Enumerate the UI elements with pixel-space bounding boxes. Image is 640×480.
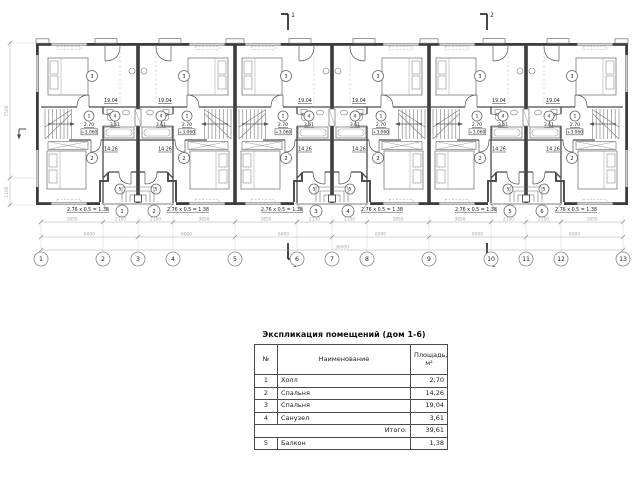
table-row: 2 Спальня 14,26 [255,387,448,400]
pillow [218,61,226,74]
dim-label: 6000 [472,231,483,237]
area-label-bedroom-large: 19.04 [546,98,560,104]
dim-label: 3850 [392,216,403,222]
dim-label: 3850 [586,216,597,222]
stair-start-dot [614,123,616,125]
pillow [438,76,446,89]
cell-num: 4 [255,412,278,425]
pillow [50,61,58,74]
entry-canopy [159,39,181,44]
area-label-bedroom-small: 14.26 [158,147,172,153]
axis-bubble-label: 3 [136,256,140,263]
door-swing [381,95,393,107]
stair-arrow [589,122,594,126]
entry-canopy [289,39,311,44]
door-swing [313,172,325,184]
door-swing [465,95,477,107]
axis-bubble-label: 4 [171,256,175,263]
room-badge-balcony-label: 5 [155,187,158,193]
pillow [413,154,421,167]
door-swing [91,140,101,152]
radiator [251,47,275,50]
dim-label: 3850 [66,216,77,222]
pillow [50,76,58,89]
bed [188,58,228,95]
room-badge-bedroom-small-label: 2 [284,156,287,162]
dim-label: 2150 [344,216,355,222]
sink [511,110,518,115]
cell-num: 2 [255,387,278,400]
cell-name: Санузел [278,412,411,425]
dim-label: 2150 [538,216,549,222]
level-mark-label: +3.060 [469,130,485,136]
balcony-area-calc: 2.76 x 0.5 = 1.38 [67,207,109,213]
pillow [49,154,57,167]
room-badge-balcony-label: 5 [349,187,352,193]
stair-arrow [458,122,463,126]
dim-label: 2150 [309,216,320,222]
stair-arrow [201,122,206,126]
pillow [244,61,252,74]
balcony-area-calc: 2.76 x 0.5 = 1.38 [167,207,209,213]
sink [535,110,542,115]
bed [382,58,422,95]
unit-number-badge-label: 2 [152,209,156,215]
level-mark-label: +3.060 [275,130,291,136]
axis-bubble-label: 10 [487,256,495,263]
stair-start-dot [242,123,244,125]
sink [317,110,324,115]
room-badge-balcony-label: 5 [507,187,510,193]
door-swing [533,172,545,184]
bathtub-inner [106,129,132,136]
room-badge-bedroom-large-label: 3 [478,74,481,80]
room-badge-hall-label: 1 [186,114,189,120]
header-num: № [255,345,278,375]
unit-number-badge-label: 1 [120,209,124,215]
dim-total-label: 36000 [335,244,349,250]
axis-bubble-label: 7 [330,256,334,263]
dim-label: 2150 [150,216,161,222]
dim-label: 6000 [569,231,580,237]
room-badge-balcony-label: 5 [119,187,122,193]
area-label-bedroom-small: 14.26 [298,147,312,153]
radiator [57,47,81,50]
pillow [218,76,226,89]
level-mark-label: +3.060 [373,130,389,136]
stair-arrow [70,122,75,126]
door-swing [493,46,508,61]
door-swing [479,140,489,152]
room-badge-hall-label: 1 [380,114,383,120]
pillow [243,170,251,183]
door-swing [145,172,157,184]
radiator [583,47,607,50]
door-swing [350,46,365,61]
cell-area: 3,61 [411,412,448,425]
axis-bubble-label: 12 [557,256,565,263]
top-ledge [615,39,628,43]
room-badge-hall-label: 1 [476,114,479,120]
room-badge-bathroom-label: 4 [114,114,117,120]
fixture [517,68,523,74]
fixture [335,68,341,74]
door-swing [187,95,199,107]
porch-post [523,195,530,202]
area-label-bedroom-large: 19.04 [492,98,506,104]
room-badge-bedroom-small-label: 2 [570,156,573,162]
table-row: 5 Балкон 1,38 [255,437,448,450]
dim-label: 6000 [84,231,95,237]
dim-label-vertical: 1100 [4,186,10,197]
room-badge-bedroom-large-label: 3 [90,74,93,80]
axis-bubble-label: 9 [427,256,431,263]
door-swing [77,95,89,107]
dim-label: 2150 [503,216,514,222]
level-mark-label: +3.060 [179,130,195,136]
door-swing [575,95,587,107]
entry-canopy [95,39,117,44]
door-swing [563,140,573,152]
bed [48,58,88,95]
bathtub-inner [338,129,364,136]
cell-num: 3 [255,400,278,413]
fixture [129,68,135,74]
porch-post [135,195,142,202]
area-label-bedroom-small: 14.26 [352,147,366,153]
axis-bubble-label: 13 [619,256,627,263]
bed [576,58,616,95]
entry-canopy [547,39,569,44]
area-label-bedroom-small: 14.26 [104,147,118,153]
axis-bubble-label: 11 [522,256,530,263]
pillow [438,61,446,74]
total-value: 39,61 [411,425,448,438]
bathtub-inner [494,129,520,136]
table-row: 3 Спальня 19,04 [255,400,448,413]
dim-label: 3850 [260,216,271,222]
table-row: 4 Санузел 3,61 [255,412,448,425]
section-mark-label: 2 [490,12,494,19]
pillow [606,61,614,74]
dim-label: 6000 [181,231,192,237]
total-label: Итого: [255,425,411,438]
room-badge-hall-label: 1 [574,114,577,120]
room-explication-table: № Наименование Площадь, м² 1 Холл 2,70 2… [254,344,448,450]
room-badge-bedroom-small-label: 2 [376,156,379,162]
room-badge-bathroom-label: 4 [308,114,311,120]
door-swing [299,46,314,61]
dim-label: 6000 [278,231,289,237]
header-area: Площадь, м² [411,345,448,375]
area-label-bedroom-large: 19.04 [352,98,366,104]
pillow [607,154,615,167]
axis-bubble-label: 2 [101,256,105,263]
unit-number-badge-label: 5 [508,209,512,215]
explication-title: Экспликация помещений (дом 1-6) [254,330,434,339]
door-swing [339,172,351,184]
cell-num: 5 [255,437,278,450]
unit-number-badge-label: 4 [346,209,350,215]
cell-name: Холл [278,375,411,388]
balcony-area-calc: 2.76 x 0.5 = 1.38 [555,207,597,213]
dim-label: 2150 [115,216,126,222]
room-badge-bedroom-large-label: 3 [570,74,573,80]
party-wall [427,45,431,203]
room-badge-bedroom-small-label: 2 [90,156,93,162]
level-mark-label: +3.060 [81,130,97,136]
bathtub-inner [532,129,558,136]
room-badge-bathroom-label: 4 [548,114,551,120]
pillow [219,170,227,183]
pillow [219,154,227,167]
room-badge-bathroom-label: 4 [354,114,357,120]
fixture [323,68,329,74]
door-swing [156,46,171,61]
unit-number-badge-label: 6 [540,209,544,215]
pillow [49,170,57,183]
door-swing [175,140,185,152]
stair-arrow [395,122,400,126]
door-swing [369,140,379,152]
dim-label: 3850 [198,216,209,222]
entry-canopy [353,39,375,44]
axis-bubble-label: 5 [233,256,237,263]
header-area-line2: м² [414,360,444,367]
unit-number-badge-label: 3 [314,209,318,215]
top-ledge [420,39,438,43]
pillow [412,61,420,74]
room-badge-hall-label: 1 [282,114,285,120]
stair-start-dot [226,123,228,125]
top-ledge [36,39,49,43]
area-label-bedroom-large: 19.04 [158,98,172,104]
stair-start-dot [436,123,438,125]
sink [341,110,348,115]
area-label-bedroom-small: 14.26 [546,147,560,153]
table-header-row: № Наименование Площадь, м² [255,345,448,375]
pillow [606,76,614,89]
area-label-bedroom-large: 19.04 [298,98,312,104]
bed [436,58,476,95]
cell-area: 14,26 [411,387,448,400]
stair-start-dot [420,123,422,125]
axis-bubble-label: 1 [39,256,43,263]
cell-name: Спальня [278,387,411,400]
pillow [244,76,252,89]
door-swing [507,172,519,184]
fixture [529,68,535,74]
pillow [437,170,445,183]
balcony-area-calc: 2.76 x 0.5 = 1.38 [361,207,403,213]
door-swing [105,46,120,61]
cell-area: 2,70 [411,375,448,388]
area-label-bedroom-large: 19.04 [104,98,118,104]
room-badge-bedroom-large-label: 3 [376,74,379,80]
explication-block: Экспликация помещений (дом 1-6) № Наимен… [254,330,434,450]
bathtub-inner [144,129,170,136]
stair-start-dot [48,123,50,125]
bathtub [336,127,366,138]
pillow [607,170,615,183]
entry-canopy [483,39,505,44]
porch-post [329,195,336,202]
axis-bubble-label: 8 [365,256,369,263]
door-swing [119,172,131,184]
radiator [195,47,219,50]
cell-name: Спальня [278,400,411,413]
pillow [413,170,421,183]
room-badge-bedroom-large-label: 3 [182,74,185,80]
bathtub-inner [300,129,326,136]
cell-area: 19,04 [411,400,448,413]
room-badge-bathroom-label: 4 [160,114,163,120]
bathtub [104,127,134,138]
cell-name: Балкон [278,437,411,450]
bathtub [298,127,328,138]
axis-bubble-label: 6 [295,256,299,263]
bed [242,58,282,95]
drawing-sheet: 319.0412.70+3.06043.6114.26252.76 x 0.5 … [0,0,640,480]
pillow [412,76,420,89]
room-badge-balcony-label: 5 [313,187,316,193]
dim-label-vertical: 7500 [4,105,10,116]
door-swing [285,140,295,152]
room-badge-hall-label: 1 [88,114,91,120]
header-name: Наименование [278,345,411,375]
room-badge-bedroom-small-label: 2 [182,156,185,162]
area-label-bedroom-small: 14.26 [492,147,506,153]
cell-area: 1,38 [411,437,448,450]
stair-arrow [264,122,269,126]
sink [123,110,130,115]
level-flag-arrow [17,135,21,140]
cell-num: 1 [255,375,278,388]
dim-label: 6000 [375,231,386,237]
radiator [445,47,469,50]
door-swing [544,46,559,61]
fixture [141,68,147,74]
balcony-area-calc: 2.76 x 0.5 = 1.38 [261,207,303,213]
party-wall [233,45,237,203]
room-badge-bedroom-large-label: 3 [284,74,287,80]
room-badge-balcony-label: 5 [543,187,546,193]
room-badge-bedroom-small-label: 2 [478,156,481,162]
table-total-row: Итого: 39,61 [255,425,448,438]
floor-plan: 319.0412.70+3.06043.6114.26252.76 x 0.5 … [0,0,640,300]
bathtub [530,127,560,138]
top-ledge [226,39,244,43]
room-badge-bathroom-label: 4 [502,114,505,120]
section-mark-label: 1 [291,12,295,19]
sink [147,110,154,115]
bathtub [142,127,172,138]
pillow [437,154,445,167]
balcony-area-calc: 2.76 x 0.5 = 1.38 [455,207,497,213]
table-row: 1 Холл 2,70 [255,375,448,388]
door-swing [271,95,283,107]
dim-label: 3850 [454,216,465,222]
level-mark-label: +3.060 [567,130,583,136]
pillow [243,154,251,167]
radiator [389,47,413,50]
bathtub [492,127,522,138]
